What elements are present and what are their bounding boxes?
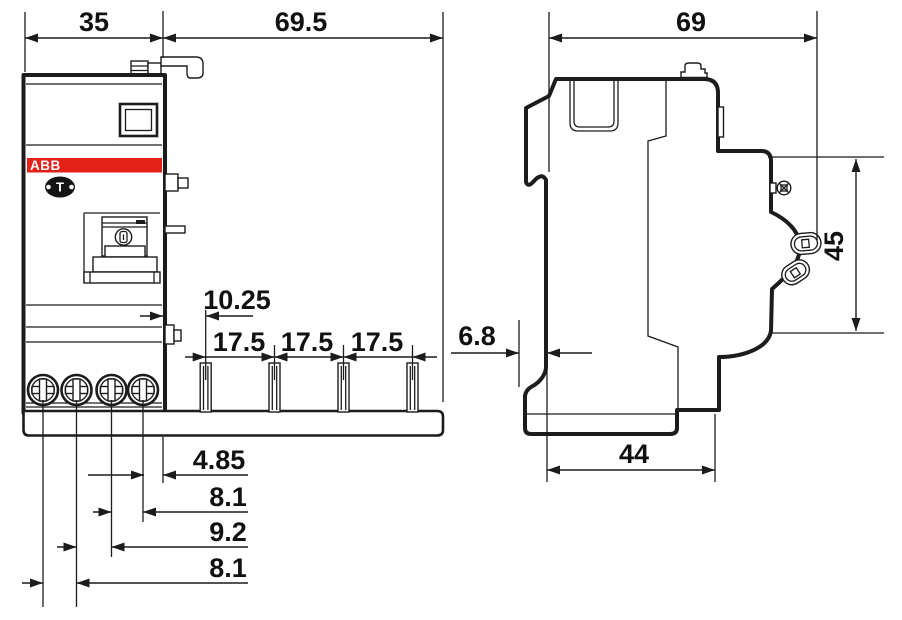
busbar-pins — [200, 363, 418, 412]
assembly-base — [93, 257, 157, 272]
assembly-flange — [84, 272, 160, 283]
technical-drawing-page: ABB T — [0, 0, 902, 620]
dim-arrow — [413, 353, 426, 362]
dim-depth: 69 — [676, 7, 706, 37]
dimensional-drawing: ABB T — [0, 0, 902, 620]
front-view: ABB T — [24, 57, 444, 436]
dim-arrow — [549, 34, 562, 43]
dim-terminal-3: 9.2 — [209, 517, 247, 547]
dim-arrow — [430, 34, 443, 43]
dim-arrow — [99, 508, 112, 517]
dim-arrow — [702, 466, 715, 475]
dim-arrow — [547, 466, 560, 475]
side-view — [525, 63, 822, 434]
dim-pin-pitch-1: 17.5 — [213, 327, 266, 357]
dim-arrow — [506, 349, 519, 358]
side-pin-tip — [178, 178, 188, 188]
top-lock-tab — [681, 63, 707, 78]
side-body-outline — [525, 79, 800, 434]
dim-height: 45 — [819, 231, 849, 261]
assembly-tick — [136, 220, 145, 224]
brand-logo: ABB — [30, 158, 61, 173]
dim-pin-pitch-3: 17.5 — [351, 327, 404, 357]
side-terminal-screw[interactable] — [770, 181, 791, 195]
dim-terminal-4: 8.1 — [209, 553, 247, 583]
dim-arrow — [804, 34, 817, 43]
test-button-dot — [46, 185, 51, 190]
dim-din-offset: 6.8 — [458, 321, 496, 351]
dim-arrow — [852, 318, 861, 331]
dim-terminal-1: 4.85 — [193, 445, 246, 475]
dim-arrow — [77, 579, 90, 588]
clip-hook — [161, 57, 203, 78]
dim-arrow — [143, 508, 156, 517]
test-button-dot — [69, 185, 74, 190]
dim-pin-pitch-2: 17.5 — [281, 327, 334, 357]
dim-base-depth: 44 — [619, 439, 649, 469]
dim-arrow — [150, 34, 163, 43]
dim-arrow — [163, 34, 176, 43]
dim-module-width: 35 — [79, 7, 109, 37]
dim-arrow — [30, 579, 43, 588]
dim-pin-span: 69.5 — [275, 7, 328, 37]
dim-terminal-2: 8.1 — [209, 482, 247, 512]
dim-arrow — [131, 471, 144, 480]
dim-arrow — [163, 471, 176, 480]
assembly-step — [105, 246, 145, 257]
test-button-label: T — [56, 180, 64, 195]
dim-arrow — [64, 543, 77, 552]
side-clamp — [165, 325, 174, 344]
busbar-shelf — [24, 411, 444, 436]
side-clamp-nub — [174, 330, 181, 341]
test-button[interactable]: T — [45, 177, 75, 198]
dim-arrow — [852, 159, 861, 172]
dim-arrow — [112, 543, 125, 552]
side-pin-block — [165, 174, 178, 191]
dim-arrow — [25, 34, 38, 43]
body-side-pins — [165, 174, 188, 344]
dim-pin-offset: 10.25 — [203, 285, 271, 315]
side-pin-thin — [165, 226, 185, 233]
side-edge-rib — [718, 107, 724, 137]
dim-arrow — [193, 353, 206, 362]
